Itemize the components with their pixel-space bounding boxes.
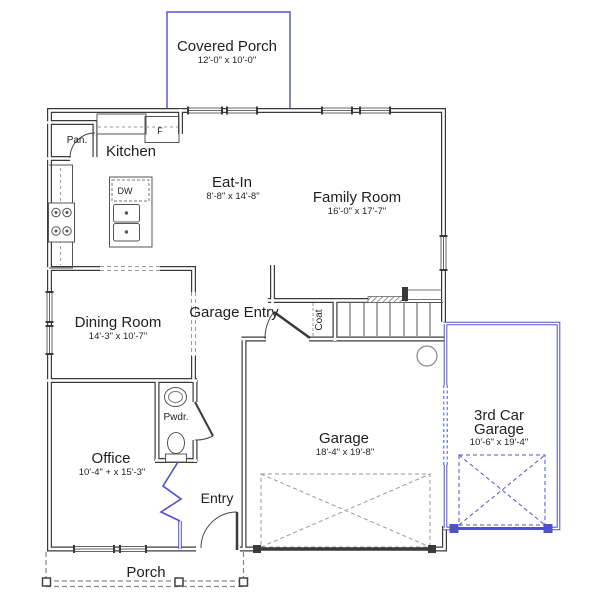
room-label-porch: Porch [126,564,165,581]
room-dims-family-room: 16'-0" x 17'-7" [328,206,386,217]
stairs [337,287,443,336]
floor-plan: Covered Porch 12'-0" x 10'-0" Kitchen Pa… [0,0,600,600]
room-label-covered-porch: Covered Porch [177,38,277,55]
opening-dining-right [192,292,196,356]
appliance-label-dishwasher: DW [118,186,133,196]
water-heater-icon [417,346,437,366]
third-garage-x-box [459,455,545,525]
toilet-icon [166,433,187,463]
room-label-kitchen: Kitchen [106,143,156,160]
room-label-powder: Pwdr. [163,412,188,423]
stair-opening-rails [408,290,442,300]
appliance-label-refrigerator: F [157,126,163,136]
room-label-eat-in: Eat-In [212,174,252,191]
window [46,292,54,322]
room-label-garage-entry: Garage Entry [189,304,279,321]
window [188,107,222,115]
room-label-dining-room: Dining Room [75,314,162,331]
range-icon [49,203,75,242]
room-label-3rd-car-line2: Garage [474,421,524,438]
stair-railing-hatch [368,297,406,303]
opening-dining-top [100,267,160,271]
optional-wall-zigzag [161,462,181,521]
window [74,545,114,553]
window [120,545,146,553]
room-dims-office: 10'-4" + x 15'-3" [79,467,146,478]
wall-dining-top-right [160,269,194,293]
room-label-family-room: Family Room [313,189,401,206]
room-label-garage: Garage [319,430,369,447]
room-dims-covered-porch: 12'-0" x 10'-0" [198,55,256,66]
window [360,107,390,115]
garage-doors [253,524,553,553]
window [227,107,257,115]
room-label-pantry: Pan. [67,135,88,146]
front-entry-door [201,512,237,550]
room-dims-eat-in: 8'-8" x 14'-8" [206,191,259,202]
window [46,326,54,354]
garage-x-box [261,474,430,547]
wall-dining-top-right [160,269,194,293]
window [322,107,352,115]
fixtures [165,346,438,462]
opening-between-garages [444,385,447,465]
powder-door [195,402,213,440]
room-dims-garage: 18'-4" x 19'-8" [316,447,374,458]
window [440,236,448,270]
room-label-office: Office [92,450,131,467]
floor-plan-canvas: Covered Porch 12'-0" x 10'-0" Kitchen Pa… [0,0,600,600]
pedestal-sink-icon [165,388,187,407]
room-dims-3rd-car: 10'-6" x 19'-4" [470,437,528,448]
garage-door-clearance [261,455,545,547]
room-dims-dining-room: 14'-3" x 10'-7" [89,331,147,342]
room-label-coat: Coat [314,309,325,330]
sink-icon [114,205,140,242]
stair-newel-post [402,287,408,301]
counter-top [97,114,146,134]
room-label-entry: Entry [201,490,234,506]
stair-treads [350,303,430,336]
